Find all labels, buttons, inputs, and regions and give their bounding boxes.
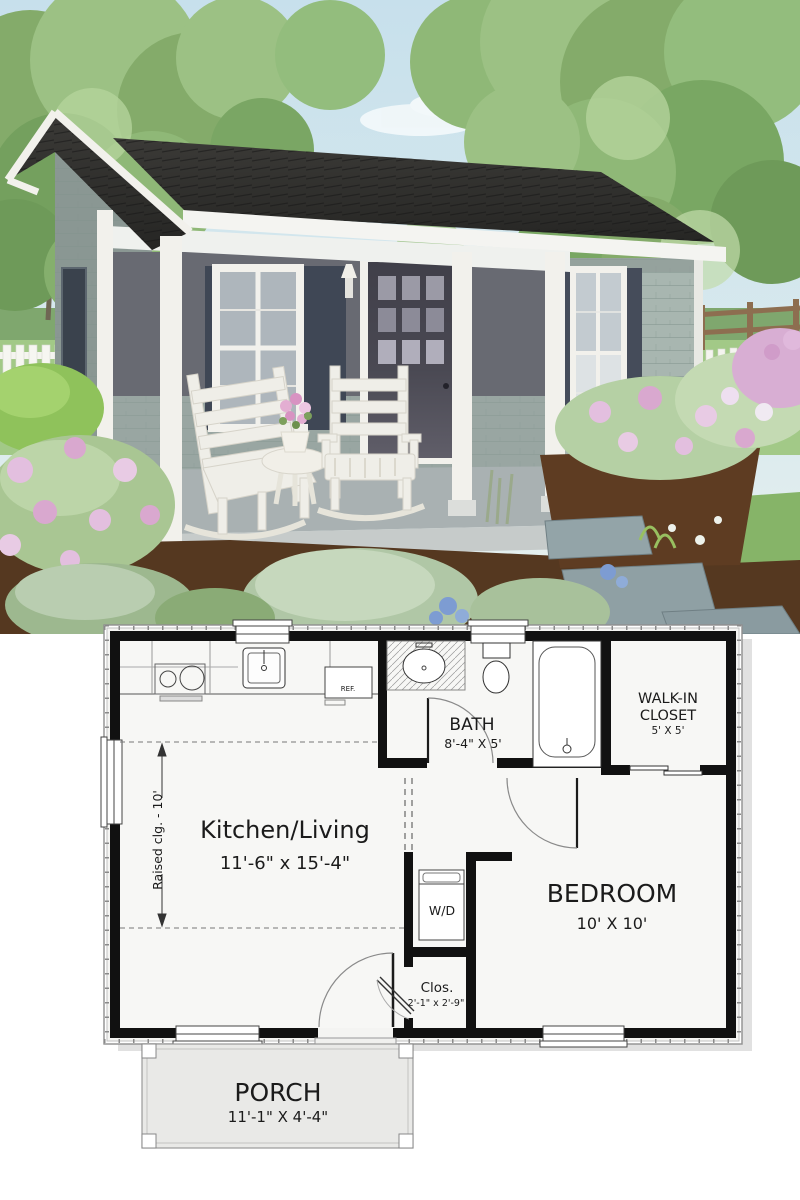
dim-walkin: 5' X 5': [651, 725, 684, 737]
label-bath: BATH: [449, 715, 494, 735]
kitchen-window: [233, 620, 292, 643]
dim-bath: 8'-4" X 5': [444, 736, 502, 751]
label-kitchen-living: Kitchen/Living: [200, 816, 370, 844]
floor-plan: Kitchen/Living 11'-6" x 15'-4" BATH 8'-4…: [101, 620, 752, 1148]
kitchen-sink-icon: [243, 648, 285, 688]
door-lites: [378, 276, 444, 364]
bathtub-icon: [533, 641, 601, 767]
label-walkin-line1: WALK-IN: [638, 691, 698, 707]
label-washer-dryer: W/D: [429, 903, 455, 918]
bedroom-window-bottom: [540, 1026, 627, 1047]
door-knob: [443, 383, 449, 389]
dim-bedroom: 10' X 10': [577, 914, 648, 933]
toilet-icon: [483, 643, 510, 693]
bath-window: [468, 620, 528, 643]
label-porch: PORCH: [234, 1078, 321, 1107]
dim-closet: 2'-1" x 2'-9": [408, 998, 465, 1009]
porch-post-plan: [142, 1044, 156, 1058]
porch-post-plan: [399, 1134, 413, 1148]
label-raised-ceiling: Raised clg. - 10': [150, 790, 165, 890]
porch-post-plan: [399, 1044, 413, 1058]
label-bedroom: BEDROOM: [547, 879, 678, 908]
label-refrigerator: REF.: [341, 685, 355, 693]
porch-post: [452, 252, 472, 508]
label-closet: Clos.: [421, 980, 454, 996]
label-walkin-line2: CLOSET: [640, 708, 696, 724]
dim-porch: 11'-1" X 4'-4": [228, 1108, 328, 1126]
dim-kitchen-living: 11'-6" x 15'-4": [220, 853, 350, 874]
page: Kitchen/Living 11'-6" x 15'-4" BATH 8'-4…: [0, 0, 800, 1200]
house-rendering-image: [0, 0, 800, 652]
left-window: [101, 737, 122, 827]
porch-post-plan: [142, 1134, 156, 1148]
vanity-icon: [387, 641, 465, 690]
